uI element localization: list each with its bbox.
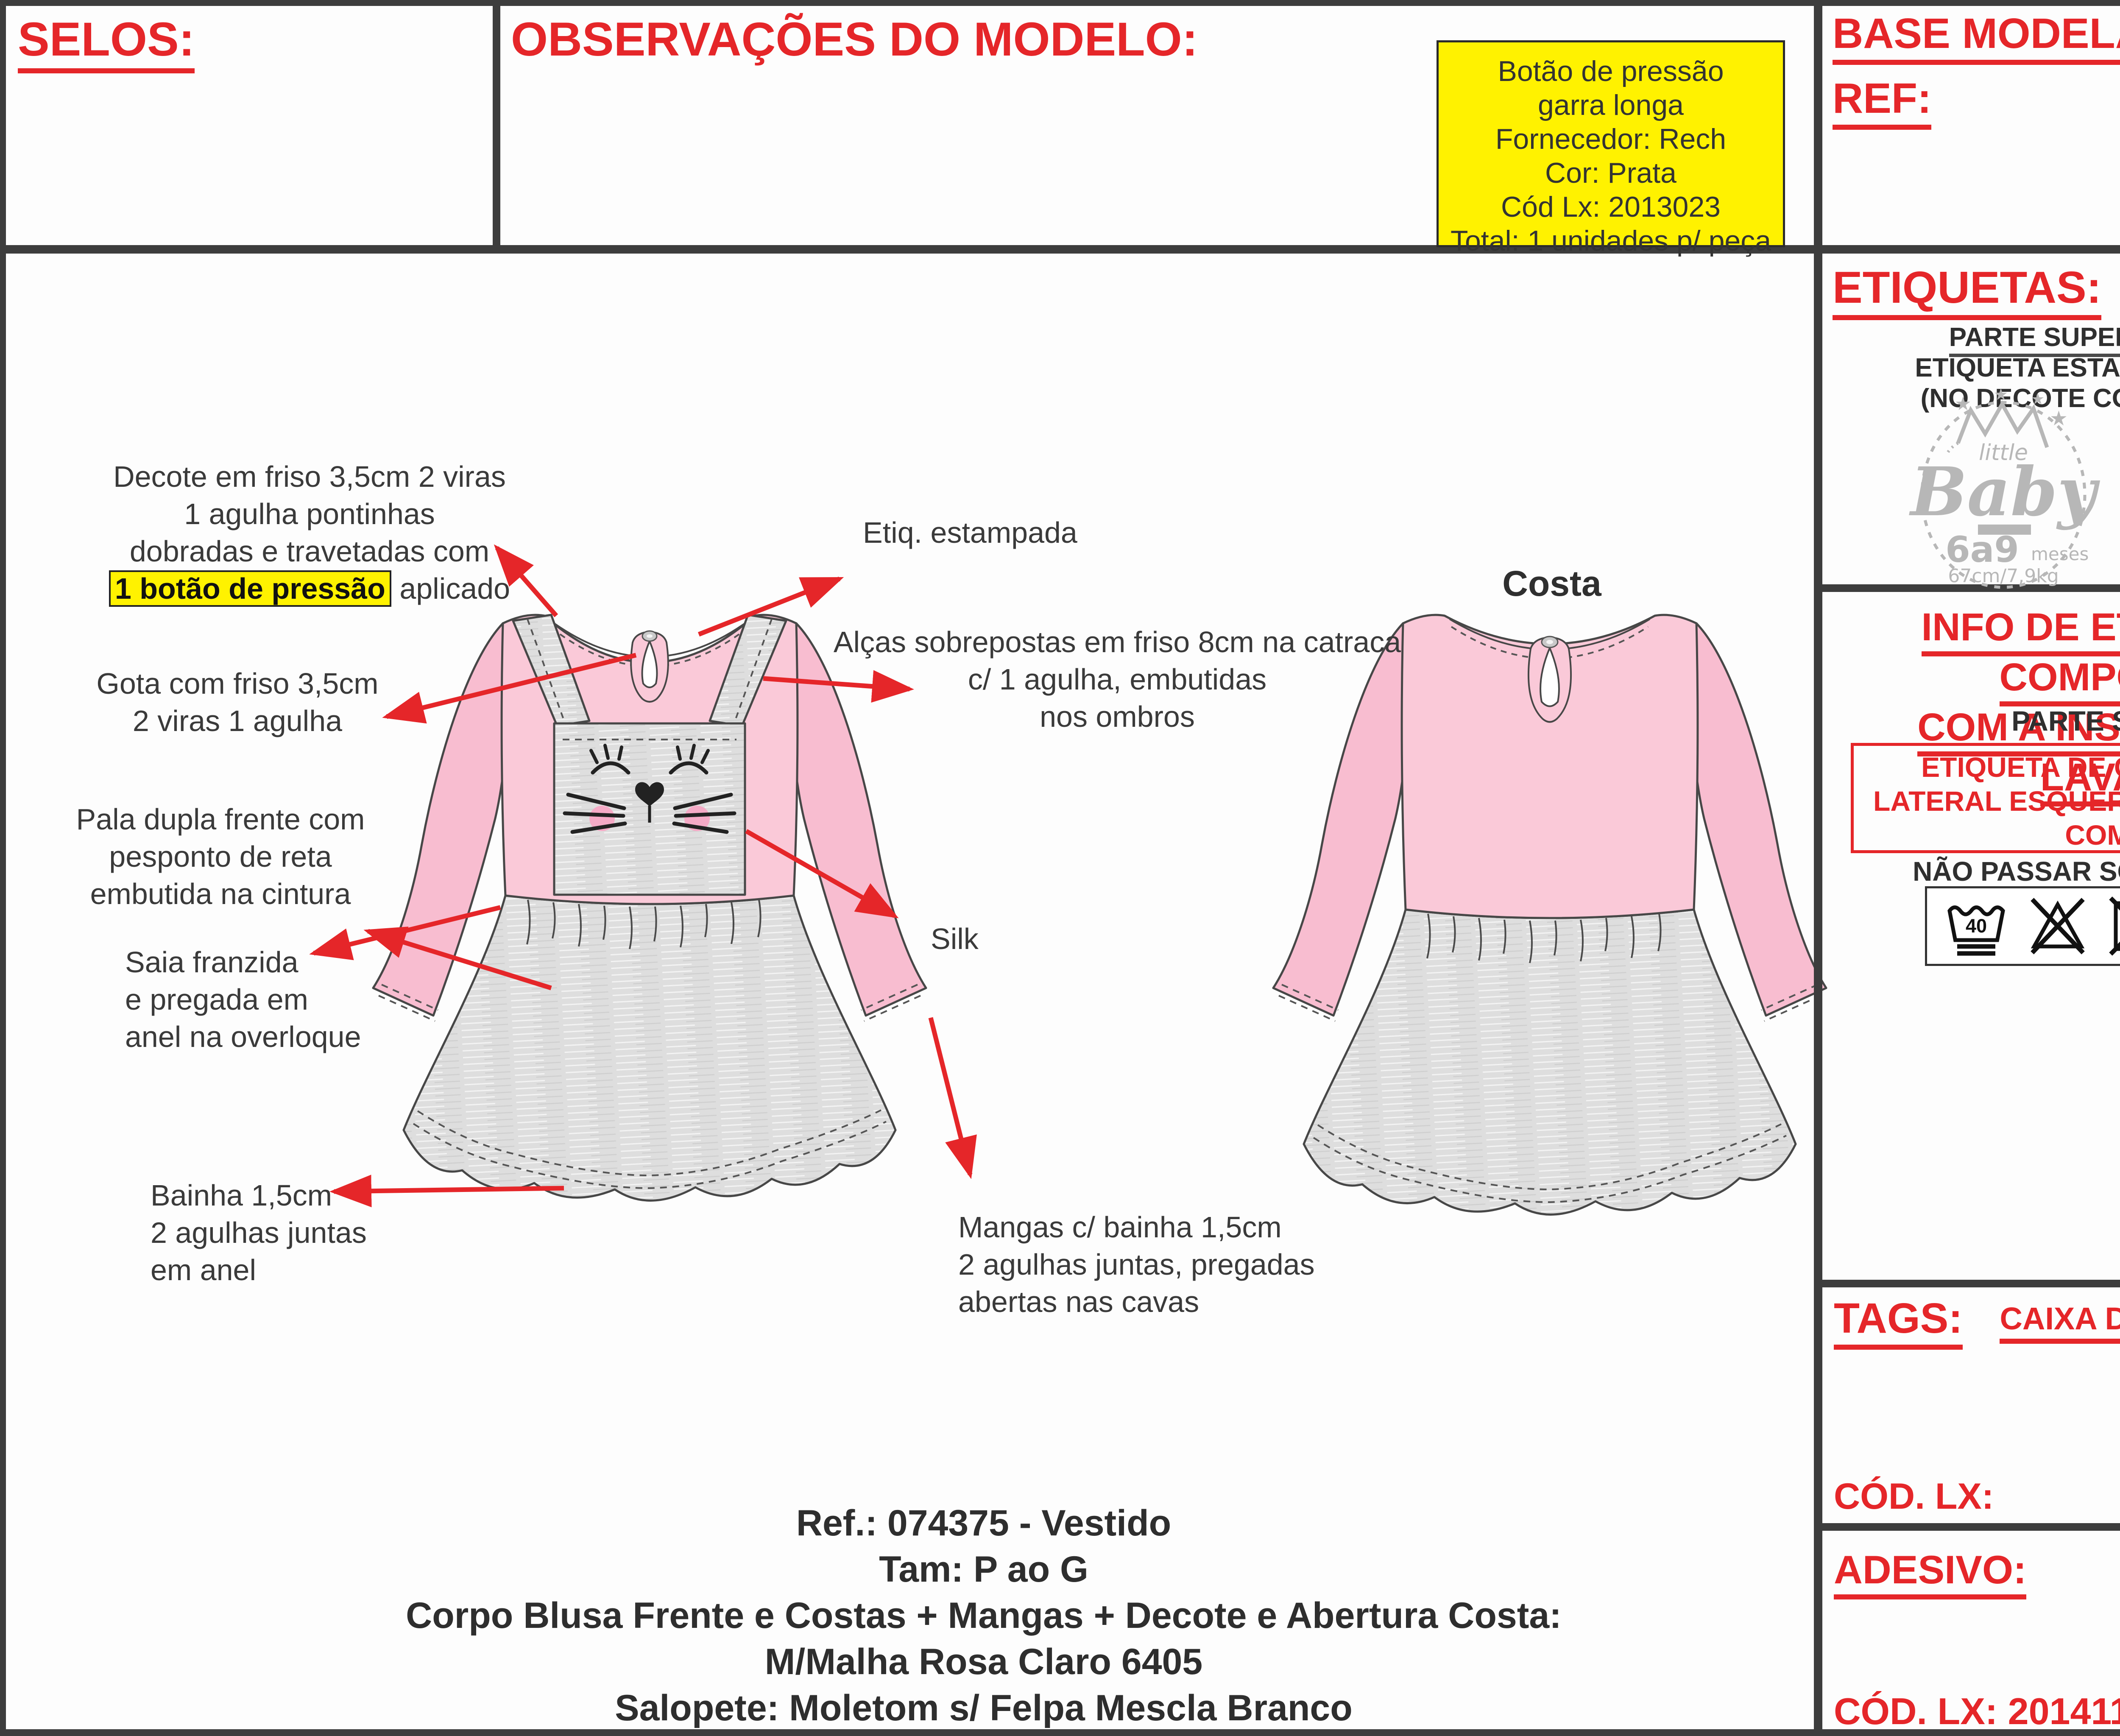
composition-box: ETIQUETA DE COMPOSIÇÃO NA LATERAL ESQUER…	[1851, 743, 2120, 853]
tech-pack-sheet: SELOS: OBSERVAÇÕES DO MODELO: Botão de p…	[0, 0, 2120, 1736]
annotation-mangas: Mangas c/ bainha 1,5cm 2 agulhas juntas,…	[958, 1209, 1340, 1320]
logo-measurements: 67cm/7,9kg	[1948, 565, 2059, 587]
no-tumble-dry-icon	[2107, 894, 2120, 958]
star-icon: ★	[1994, 385, 2008, 404]
footer-spec-block: Ref.: 074375 - Vestido Tam: P ao G Corpo…	[127, 1500, 1840, 1731]
logo-size: 6a9	[1945, 529, 2019, 570]
selos-label: SELOS:	[18, 13, 195, 73]
annotation-decote-highlight: 1 botão de pressão	[109, 570, 391, 607]
annotation-silk: Silk	[931, 920, 1058, 957]
costa-label: Costa	[1476, 563, 1628, 604]
divider-top-band	[0, 245, 2120, 254]
annotation-gota: Gota com friso 3,5cm 2 viras 1 agulha	[85, 665, 390, 740]
annotation-decote-suffix: aplicado	[391, 572, 510, 605]
star-icon: ★	[2031, 391, 2045, 408]
observacoes-header: OBSERVAÇÕES DO MODELO:	[511, 12, 1198, 67]
footer-corpo: Corpo Blusa Frente e Costas + Mangas + D…	[127, 1593, 1840, 1639]
etiqueta-estampada-label: ETIQUETA ESTAMPADA	[1915, 353, 2120, 382]
annotation-bainha: Bainha 1,5cm 2 agulhas juntas em anel	[151, 1177, 413, 1289]
etiquetas-header: ETIQUETAS:	[1833, 262, 2101, 313]
border-top	[0, 0, 2120, 6]
star-icon: ★	[1955, 393, 1971, 415]
annotation-alcas: Alças sobrepostas em friso 8cm na catrac…	[814, 623, 1420, 735]
base-modelagem-header: BASE MODELAGEM:	[1833, 9, 2120, 58]
no-iron-print-warning: NÃO PASSAR SOBRE A ESTAMPA	[1836, 856, 2120, 887]
care-icons-box: 40	[1925, 886, 2120, 966]
footer-salopete: Salopete: Moletom s/ Felpa Mescla Branco	[127, 1685, 1840, 1731]
logo-meses: meses	[2031, 544, 2089, 564]
parte-superior-label: PARTE SUPERIOR	[1949, 323, 2120, 357]
selos-header: SELOS:	[18, 12, 195, 67]
wash-40-icon: 40	[1944, 894, 2008, 958]
annotation-decote: Decote em friso 3,5cm 2 viras 1 agulha p…	[76, 458, 543, 607]
logo-baby: Baby	[1909, 453, 2100, 531]
etiquetas-label: ETIQUETAS:	[1833, 262, 2101, 320]
annotation-decote-text: Decote em friso 3,5cm 2 viras 1 agulha p…	[113, 460, 506, 568]
annotation-etiq: Etiq. estampada	[863, 514, 1160, 551]
divider-tags-adesivo	[1822, 1523, 2120, 1531]
border-left	[0, 0, 6, 1736]
divider-selos-obs	[493, 0, 500, 245]
footer-malha: M/Malha Rosa Claro 6405	[127, 1639, 1840, 1685]
star-icon: ★	[2050, 407, 2068, 430]
cod-lx-tags: CÓD. LX:	[1834, 1476, 1994, 1518]
info-parte-superior: PARTE SUPERIOR	[1836, 705, 2120, 737]
divider-right-column	[1814, 0, 1822, 1736]
yellow-note: Botão de pressão garra longa Fornecedor:…	[1437, 40, 1785, 247]
footer-ref: Ref.: 074375 - Vestido	[127, 1500, 1840, 1546]
caixa-fosforo-label: CAIXA DE FÓSFORO:	[2000, 1301, 2120, 1344]
observacoes-label: OBSERVAÇÕES DO MODELO:	[511, 13, 1198, 66]
base-modelagem-label: BASE MODELAGEM:	[1833, 10, 2120, 65]
svg-text:40: 40	[1966, 915, 1987, 937]
cod-lx-adesivo: CÓD. LX: 20141185	[1834, 1690, 2120, 1733]
tags-label: TAGS:	[1834, 1295, 1963, 1350]
no-bleach-icon	[2026, 894, 2089, 958]
ref-header: REF:	[1833, 74, 1931, 123]
divider-info-tags	[1822, 1280, 2120, 1287]
footer-tam: Tam: P ao G	[127, 1546, 1840, 1593]
annotation-pala: Pala dupla frente com pesponto de reta e…	[64, 801, 377, 913]
little-baby-logo: ★ ★ ★ ★ little Baby 6a9 meses 67cm/7,9kg	[1904, 384, 2107, 596]
ref-label: REF:	[1833, 75, 1931, 130]
adesivo-label: ADESIVO:	[1834, 1547, 2026, 1599]
adesivo-header: ADESIVO:	[1834, 1547, 2026, 1593]
info-title-line1: INFO DE ETIQUETA DE COMPOSIÇÃO	[1922, 606, 2120, 706]
tags-header: TAGS: CAIXA DE FÓSFORO:	[1834, 1294, 2120, 1343]
annotation-saia: Saia franzida e pregada em anel na overl…	[125, 943, 379, 1055]
